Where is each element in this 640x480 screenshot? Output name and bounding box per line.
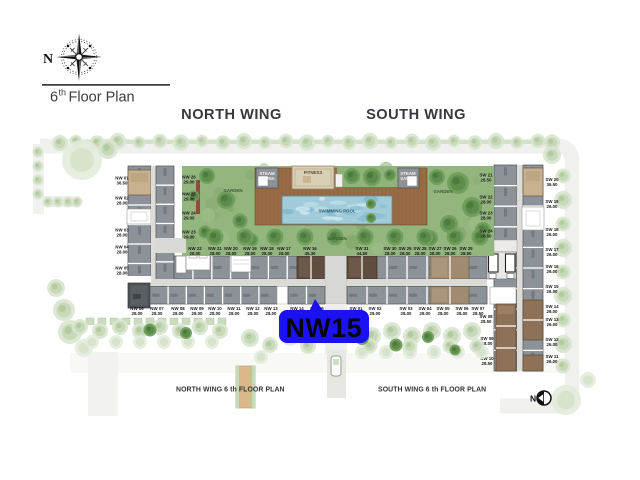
svg-text:28.00: 28.00 — [430, 251, 442, 256]
svg-text:N: N — [43, 52, 53, 67]
svg-text:NW 02: NW 02 — [115, 196, 129, 201]
svg-text:28.00: 28.00 — [248, 311, 260, 316]
svg-text:NW15: NW15 — [286, 313, 363, 343]
svg-text:28.00: 28.00 — [117, 270, 129, 275]
svg-text:NW 20: NW 20 — [224, 246, 238, 251]
svg-text:NW 19: NW 19 — [243, 246, 257, 251]
svg-text:29.00: 29.00 — [184, 215, 196, 220]
svg-text:SW 23: SW 23 — [479, 211, 493, 216]
svg-text:28.00: 28.00 — [190, 251, 202, 256]
svg-text:SOUTH WING 6 th FLOOR PLAN: SOUTH WING 6 th FLOOR PLAN — [378, 387, 486, 394]
svg-text:29.00: 29.00 — [184, 234, 196, 239]
svg-text:28.00: 28.00 — [152, 311, 164, 316]
svg-text:SW 02: SW 02 — [368, 306, 382, 311]
svg-text:SW 14: SW 14 — [545, 304, 559, 309]
svg-text:28.50: 28.50 — [481, 233, 493, 238]
svg-text:28.00: 28.00 — [266, 311, 278, 316]
svg-text:SW 27: SW 27 — [428, 246, 442, 251]
svg-text:26.00: 26.00 — [547, 359, 559, 364]
svg-text:NW 03: NW 03 — [115, 228, 129, 233]
svg-text:26.00: 26.00 — [547, 342, 559, 347]
svg-text:28.00: 28.00 — [132, 311, 144, 316]
svg-text:26.00: 26.00 — [547, 232, 559, 237]
svg-text:28.00: 28.00 — [226, 251, 238, 256]
svg-text:NW 06: NW 06 — [130, 306, 144, 311]
svg-text:NW 26: NW 26 — [182, 175, 196, 180]
svg-text:28.00: 28.00 — [385, 251, 397, 256]
svg-text:NORTH WING: NORTH WING — [181, 107, 282, 123]
svg-text:SW 03: SW 03 — [399, 306, 413, 311]
svg-text:SW 30: SW 30 — [383, 246, 397, 251]
svg-text:GARDEN: GARDEN — [327, 236, 346, 241]
svg-text:SW 13: SW 13 — [545, 317, 559, 322]
svg-text:28.00: 28.00 — [438, 311, 450, 316]
svg-text:28.00: 28.00 — [262, 251, 274, 256]
svg-text:NW 16: NW 16 — [303, 246, 317, 251]
svg-text:28.50: 28.50 — [482, 361, 494, 366]
svg-text:28.00: 28.00 — [117, 249, 129, 254]
svg-text:NW 09: NW 09 — [190, 306, 204, 311]
svg-text:28.00: 28.00 — [481, 215, 493, 220]
svg-text:28.00: 28.00 — [370, 311, 382, 316]
svg-text:FITNESS: FITNESS — [304, 170, 323, 175]
svg-text:SAUNA: SAUNA — [400, 176, 416, 181]
svg-text:28.00: 28.00 — [210, 311, 222, 316]
svg-text:NW 10: NW 10 — [208, 306, 222, 311]
svg-text:NW 04: NW 04 — [115, 245, 129, 250]
svg-text:28.00: 28.00 — [117, 200, 129, 205]
svg-text:NW 21: NW 21 — [208, 246, 222, 251]
svg-text:Floor Plan: Floor Plan — [69, 90, 135, 106]
svg-text:NW 24: NW 24 — [182, 211, 196, 216]
svg-text:6: 6 — [50, 90, 58, 106]
svg-text:36.50: 36.50 — [547, 182, 559, 187]
svg-text:28.00: 28.00 — [279, 251, 291, 256]
svg-text:28.50: 28.50 — [481, 177, 493, 182]
svg-text:SWIMMING POOL: SWIMMING POOL — [318, 209, 355, 214]
svg-text:NW 23: NW 23 — [182, 230, 196, 235]
svg-text:GARDEN: GARDEN — [433, 189, 452, 194]
svg-text:28.00: 28.00 — [457, 311, 469, 316]
svg-text:28.50: 28.50 — [461, 251, 473, 256]
svg-text:28.00: 28.00 — [415, 251, 427, 256]
svg-text:29.00: 29.00 — [184, 179, 196, 184]
svg-text:SW 06: SW 06 — [455, 306, 469, 311]
svg-text:th: th — [59, 88, 67, 98]
svg-text:SW 15: SW 15 — [545, 284, 559, 289]
svg-text:26.00: 26.00 — [547, 289, 559, 294]
svg-text:NW 05: NW 05 — [115, 266, 129, 271]
svg-text:26.00: 26.00 — [547, 252, 559, 257]
svg-text:36.50: 36.50 — [117, 180, 129, 185]
svg-text:28.00: 28.00 — [192, 311, 204, 316]
svg-text:SW 17: SW 17 — [545, 247, 559, 252]
svg-text:28.00: 28.00 — [117, 232, 129, 237]
svg-text:28.00: 28.00 — [401, 311, 413, 316]
svg-text:NW 08: NW 08 — [171, 306, 185, 311]
svg-text:29.00: 29.00 — [184, 196, 196, 201]
svg-text:26.00: 26.00 — [547, 309, 559, 314]
svg-text:SW 24: SW 24 — [479, 229, 493, 234]
svg-text:NORTH WING 6 th FLOOR PLAN: NORTH WING 6 th FLOOR PLAN — [176, 387, 285, 394]
svg-text:SW 12: SW 12 — [545, 337, 559, 342]
svg-text:SW 26: SW 26 — [443, 246, 457, 251]
svg-text:26.00: 26.00 — [547, 204, 559, 209]
svg-text:SW 19: SW 19 — [545, 199, 559, 204]
svg-text:NW 11: NW 11 — [227, 306, 241, 311]
svg-text:SW 28: SW 28 — [413, 246, 427, 251]
svg-text:26.00: 26.00 — [547, 269, 559, 274]
svg-text:26.00: 26.00 — [547, 322, 559, 327]
svg-text:SW 22: SW 22 — [479, 195, 493, 200]
svg-text:SW 05: SW 05 — [436, 306, 450, 311]
svg-text:45.30: 45.30 — [305, 251, 317, 256]
svg-text:NW 17: NW 17 — [277, 246, 291, 251]
svg-text:NW 13: NW 13 — [264, 306, 278, 311]
svg-text:NW 07: NW 07 — [150, 306, 164, 311]
svg-text:28.00: 28.00 — [229, 311, 241, 316]
svg-text:SW 21: SW 21 — [479, 173, 493, 178]
svg-text:28.00: 28.00 — [173, 311, 185, 316]
svg-text:NW 18: NW 18 — [260, 246, 274, 251]
svg-text:28.50: 28.50 — [481, 319, 493, 324]
svg-text:STEAM: STEAM — [400, 171, 416, 176]
svg-text:SW 04: SW 04 — [418, 306, 432, 311]
svg-text:N: N — [530, 394, 536, 404]
svg-text:28.00: 28.00 — [445, 251, 457, 256]
svg-text:SW 18: SW 18 — [545, 227, 559, 232]
svg-text:SW 09: SW 09 — [480, 336, 494, 341]
svg-text:28.00: 28.00 — [400, 251, 412, 256]
svg-text:SW 11: SW 11 — [546, 354, 559, 359]
svg-text:NW 25: NW 25 — [182, 192, 196, 197]
svg-text:44.50: 44.50 — [357, 251, 369, 256]
svg-text:SW 25: SW 25 — [459, 246, 473, 251]
svg-text:NW 01: NW 01 — [115, 176, 129, 181]
svg-text:28.00: 28.00 — [210, 251, 222, 256]
svg-text:SW 20: SW 20 — [545, 177, 559, 182]
svg-text:28.00: 28.00 — [245, 251, 257, 256]
svg-text:NW 22: NW 22 — [188, 246, 202, 251]
svg-text:28.00: 28.00 — [420, 311, 432, 316]
svg-text:SW 29: SW 29 — [398, 246, 412, 251]
svg-text:SW 16: SW 16 — [545, 264, 559, 269]
svg-text:NW 12: NW 12 — [246, 306, 260, 311]
svg-text:STEAM: STEAM — [259, 171, 275, 176]
svg-text:SOUTH WING: SOUTH WING — [366, 107, 466, 123]
svg-text:GARDEN: GARDEN — [223, 188, 242, 193]
svg-text:SW 08: SW 08 — [479, 314, 493, 319]
svg-text:SW 07: SW 07 — [471, 306, 485, 311]
svg-text:SW 31: SW 31 — [355, 246, 369, 251]
svg-text:28.00: 28.00 — [481, 199, 493, 204]
svg-text:SAUNA: SAUNA — [259, 176, 275, 181]
